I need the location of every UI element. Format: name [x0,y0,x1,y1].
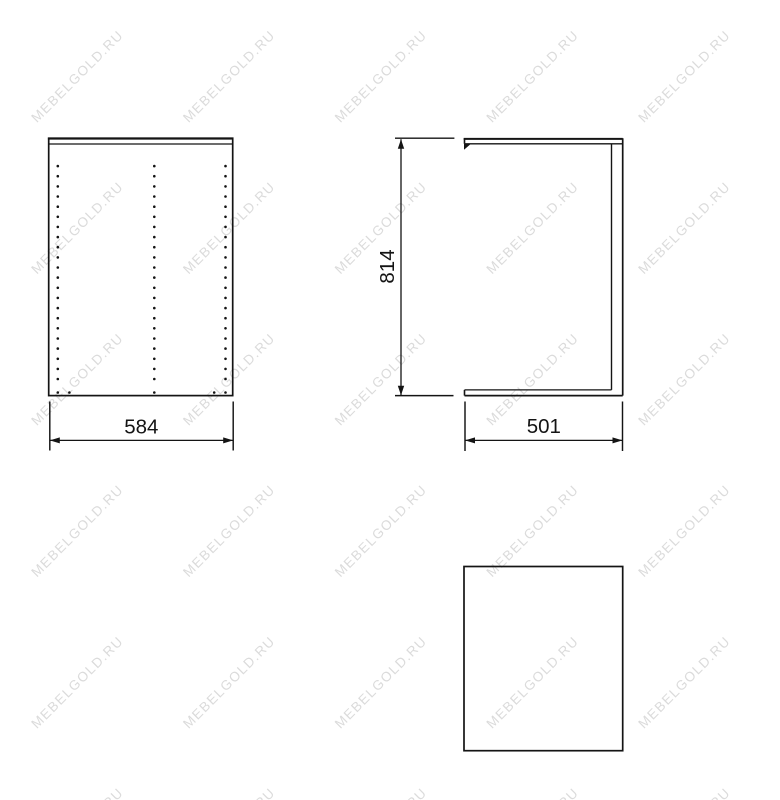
svg-text:814: 814 [376,249,399,283]
svg-text:501: 501 [527,415,561,438]
svg-text:584: 584 [124,416,158,439]
